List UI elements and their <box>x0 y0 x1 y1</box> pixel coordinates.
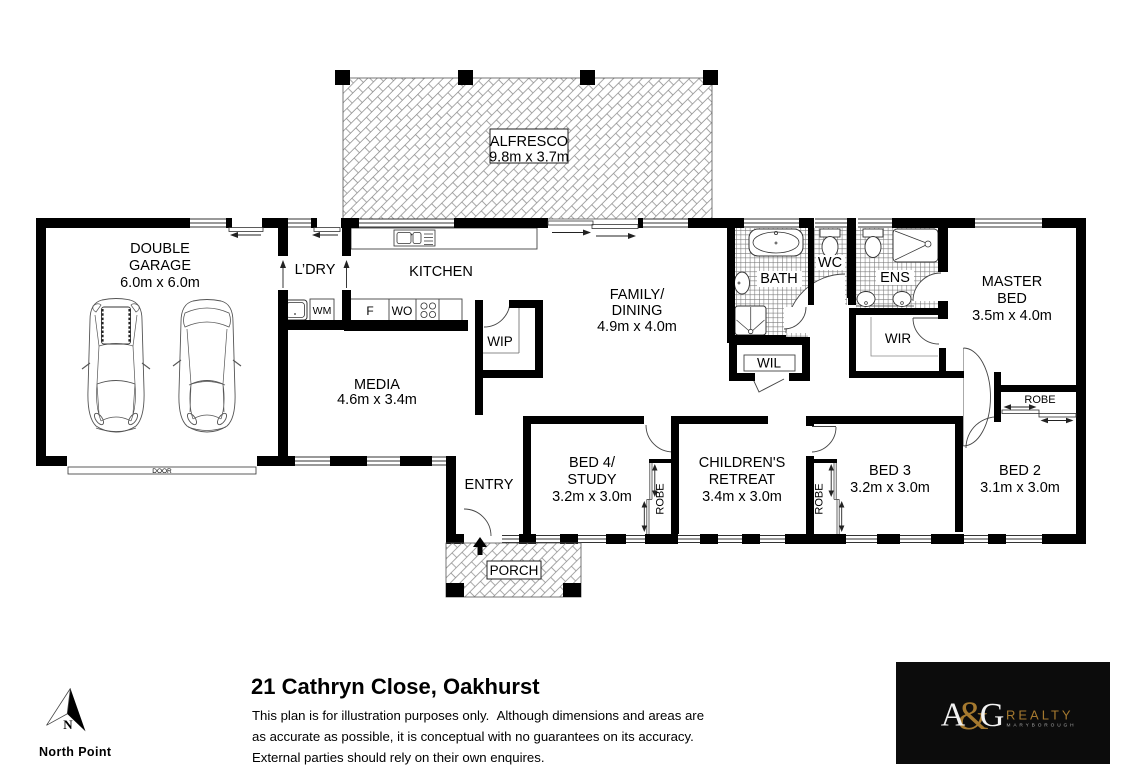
svg-text:DOUBLE: DOUBLE <box>130 241 190 257</box>
svg-text:ENTRY: ENTRY <box>465 477 514 493</box>
svg-text:3.4m x 3.0m: 3.4m x 3.0m <box>702 489 782 505</box>
svg-text:DINING: DINING <box>612 303 663 319</box>
svg-text:3.5m x 4.0m: 3.5m x 4.0m <box>972 308 1052 324</box>
svg-text:MARYBOROUGH: MARYBOROUGH <box>1007 723 1077 729</box>
svg-text:A: A <box>941 697 966 734</box>
svg-text:ENS: ENS <box>880 270 910 286</box>
svg-text:BED 2: BED 2 <box>999 463 1041 479</box>
svg-text:MEDIA: MEDIA <box>354 377 400 393</box>
svg-text:WIL: WIL <box>757 356 781 371</box>
svg-text:REALTY: REALTY <box>1006 708 1074 723</box>
svg-text:WC: WC <box>818 255 842 271</box>
svg-text:STUDY: STUDY <box>567 472 616 488</box>
svg-text:4.6m x 3.4m: 4.6m x 3.4m <box>337 392 417 408</box>
svg-text:3.2m x 3.0m: 3.2m x 3.0m <box>552 489 632 505</box>
svg-text:BED 3: BED 3 <box>869 463 911 479</box>
svg-text:N: N <box>63 717 73 732</box>
svg-text:DOOR: DOOR <box>152 468 172 475</box>
svg-text:3.2m x 3.0m: 3.2m x 3.0m <box>850 480 930 496</box>
svg-text:ALFRESCO: ALFRESCO <box>490 134 568 150</box>
svg-text:PORCH: PORCH <box>490 563 539 578</box>
svg-text:BED: BED <box>997 291 1027 307</box>
svg-text:ROBE: ROBE <box>814 483 826 514</box>
svg-text:21 Cathryn Close, Oakhurst: 21 Cathryn Close, Oakhurst <box>251 674 540 699</box>
svg-text:FAMILY/: FAMILY/ <box>610 287 665 303</box>
svg-text:BATH: BATH <box>760 271 798 287</box>
svg-text:WO: WO <box>392 304 413 318</box>
svg-text:BED 4/: BED 4/ <box>569 455 616 471</box>
svg-text:6.0m x 6.0m: 6.0m x 6.0m <box>120 275 200 291</box>
svg-text:This plan is for illustration: This plan is for illustration purposes o… <box>252 708 704 723</box>
svg-text:ROBE: ROBE <box>1024 394 1055 406</box>
svg-text:9.8m x 3.7m: 9.8m x 3.7m <box>489 150 569 166</box>
svg-text:4.9m x 4.0m: 4.9m x 4.0m <box>597 319 677 335</box>
svg-text:WM: WM <box>313 305 332 317</box>
svg-text:North Point: North Point <box>39 745 112 759</box>
svg-text:L’DRY: L’DRY <box>295 262 336 278</box>
svg-text:GARAGE: GARAGE <box>129 258 191 274</box>
svg-text:3.1m x 3.0m: 3.1m x 3.0m <box>980 480 1060 496</box>
svg-text:WIR: WIR <box>885 331 911 346</box>
svg-text:MASTER: MASTER <box>982 274 1042 290</box>
svg-text:KITCHEN: KITCHEN <box>409 264 473 280</box>
svg-text:WIP: WIP <box>487 334 513 349</box>
svg-text:F: F <box>366 304 373 318</box>
svg-text:External parties should rely o: External parties should rely on their ow… <box>252 750 544 765</box>
svg-text:G: G <box>980 697 1005 734</box>
svg-text:ROBE: ROBE <box>655 483 667 514</box>
svg-text:RETREAT: RETREAT <box>709 472 776 488</box>
svg-text:as accurate as possible, it is: as accurate as possible, it is conceptua… <box>252 729 694 744</box>
svg-text:CHILDREN'S: CHILDREN'S <box>699 455 786 471</box>
